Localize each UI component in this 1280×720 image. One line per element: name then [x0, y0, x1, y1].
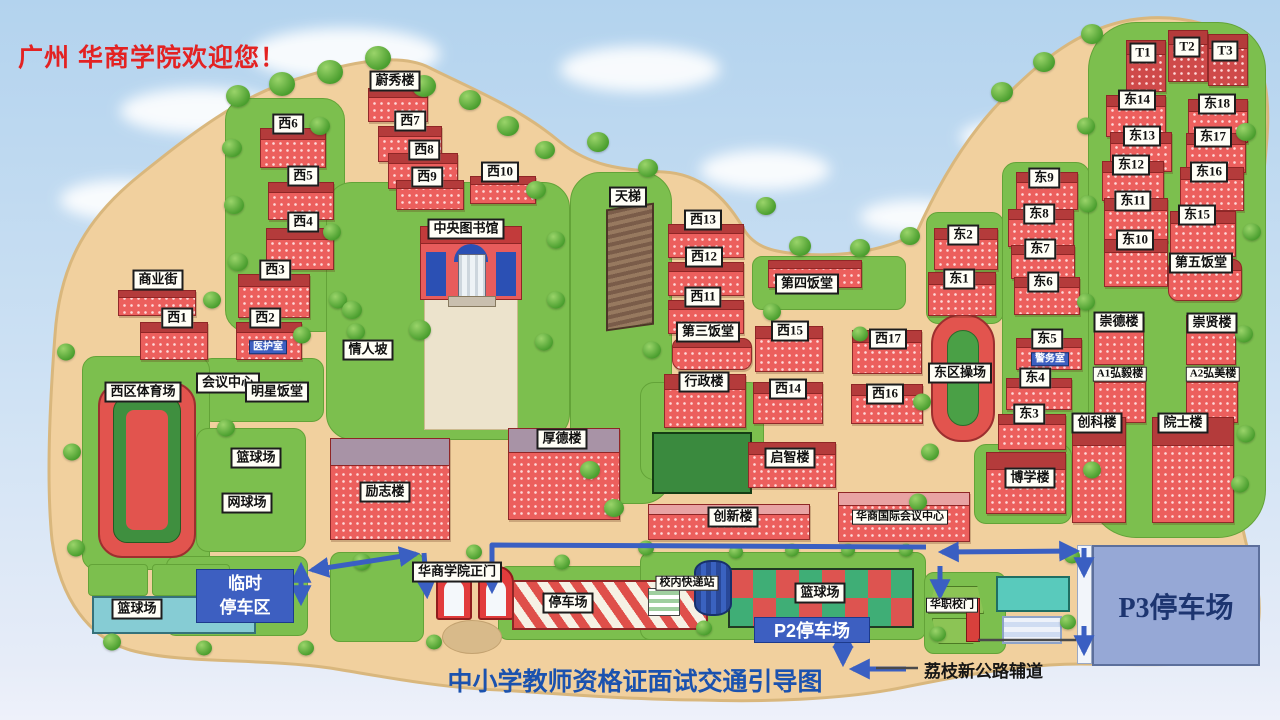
campus-map: P3停车场 蔚秀楼西6西7西8西9西10西5西4西3商业街西1西2医护室会议中心… [0, 0, 1280, 720]
temp-parking-line1: 临时 [228, 574, 262, 593]
signs-and-titles: 临时 停车区 P2停车场 广州 华商学院欢迎您！ 中小学教师资格证面试交通引导图… [0, 0, 1280, 720]
temporary-parking-sign: 临时 停车区 [196, 569, 294, 623]
p2-parking-banner: P2停车场 [754, 617, 870, 643]
welcome-text: 广州 华商学院欢迎您！ [18, 38, 286, 74]
temp-parking-line2: 停车区 [220, 598, 271, 617]
road-label: 荔枝新公路辅道 [924, 657, 1043, 682]
map-caption: 中小学教师资格证面试交通引导图 [420, 662, 850, 698]
